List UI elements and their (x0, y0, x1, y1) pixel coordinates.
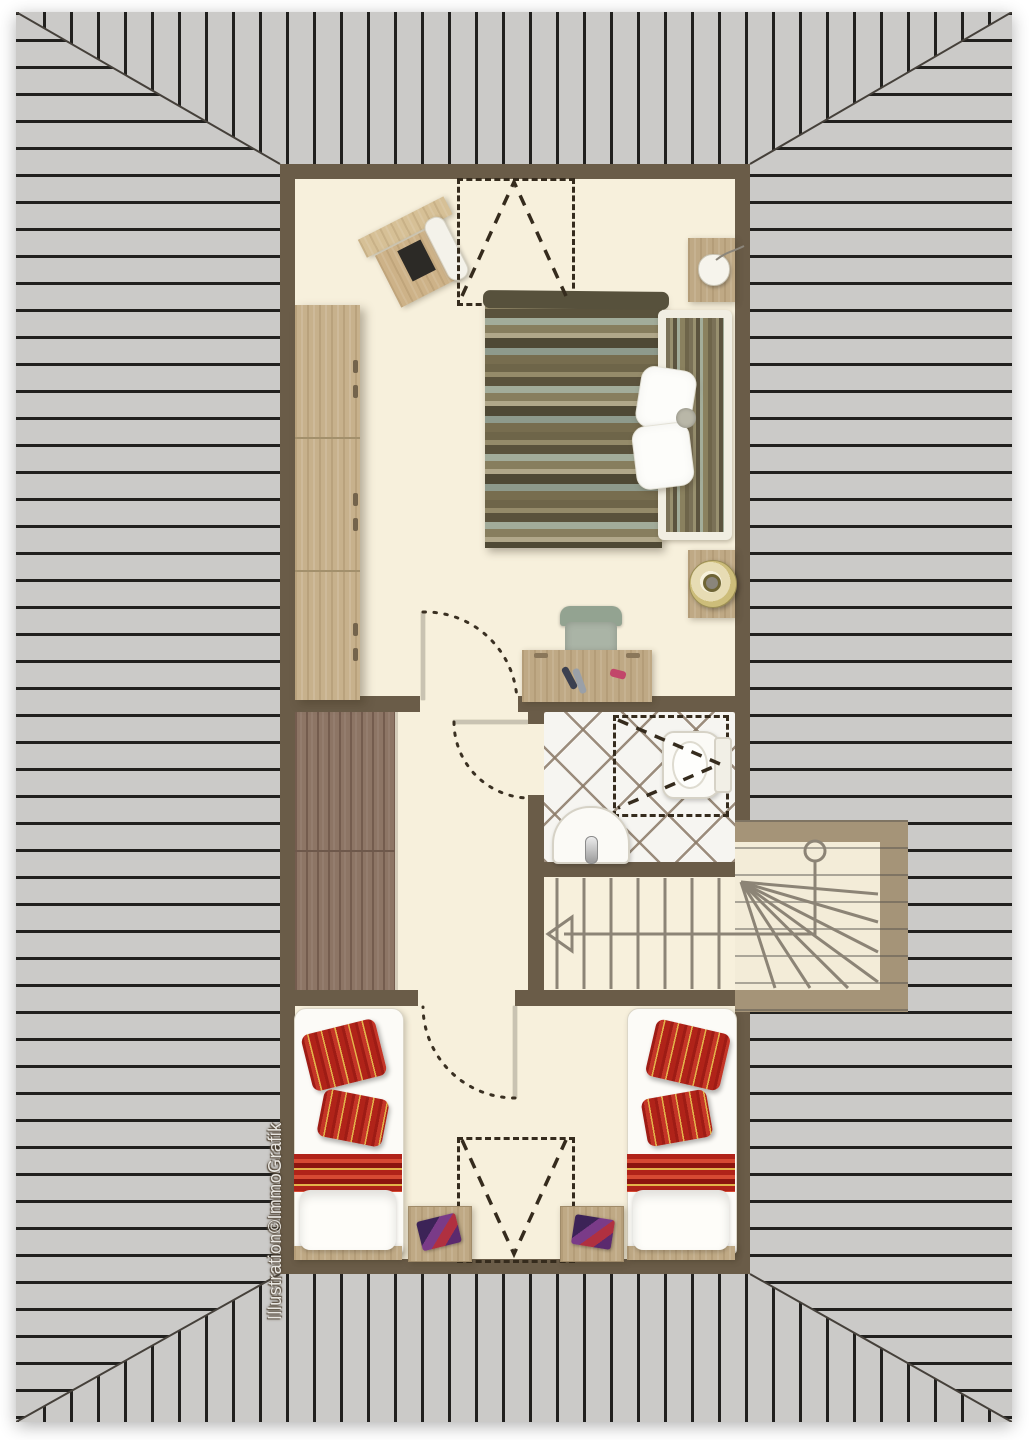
wall-kidsroom-right (515, 990, 735, 1006)
desk-handle (534, 653, 548, 658)
bedside-cabinet-left (408, 1206, 472, 1262)
pillow-tuft (676, 408, 696, 428)
red-blanket-band-right (627, 1154, 735, 1192)
double-bed-duvet (485, 296, 662, 548)
wardrobe (295, 305, 360, 700)
toilet-bowl (672, 741, 708, 789)
bedside-cabinet-right (560, 1206, 624, 1262)
wall-kidsroom-left (295, 990, 418, 1006)
toilet-tank (714, 737, 732, 793)
picture-book (416, 1213, 462, 1252)
watermark-text: Illustration©ImmoGrafik (265, 1068, 291, 1320)
wardrobe-handle (353, 518, 358, 531)
red-blanket-band-left (294, 1154, 402, 1192)
wardrobe-handle (353, 648, 358, 661)
roof-window-children-room (457, 1137, 575, 1263)
wall-bath-left-top (528, 712, 544, 724)
wardrobe-handle (353, 623, 358, 636)
door-leaf-bedroom (421, 612, 425, 700)
door-leaf-bathroom (453, 720, 528, 724)
wardrobe-divider (295, 570, 360, 572)
desk (522, 650, 652, 702)
floor-plan-page: Illustration©ImmoGrafik (0, 0, 1029, 1440)
closet-seam (295, 850, 397, 852)
wall-hall-stairs (528, 877, 544, 1006)
desk-handle (626, 653, 640, 658)
closet-front-edge (395, 712, 398, 990)
picture-book (571, 1214, 615, 1250)
toilet (662, 731, 722, 799)
wall-bath-stairs (528, 862, 735, 877)
lamp-center (703, 574, 721, 592)
white-duvet-right (633, 1190, 729, 1250)
bedside-table-bottom (688, 550, 735, 618)
white-duvet-left (300, 1190, 396, 1250)
eraser (609, 668, 627, 680)
roof-window-bedroom (457, 178, 575, 306)
round-gold-lamp (689, 560, 737, 608)
wardrobe-handle (353, 493, 358, 506)
stair-annex (735, 820, 908, 1012)
wardrobe-divider (295, 437, 360, 439)
wardrobe-handle (353, 360, 358, 373)
stair-annex-roof-lines (735, 820, 908, 1012)
small-lamp (698, 254, 730, 286)
duvet-fold-edge (483, 290, 669, 310)
bed-pillow (630, 421, 695, 492)
bedside-table-top (688, 238, 735, 302)
faucet (585, 836, 598, 864)
door-leaf-children-room (513, 1006, 517, 1098)
wardrobe-handle (353, 385, 358, 398)
closet-dark-wood (295, 712, 397, 990)
